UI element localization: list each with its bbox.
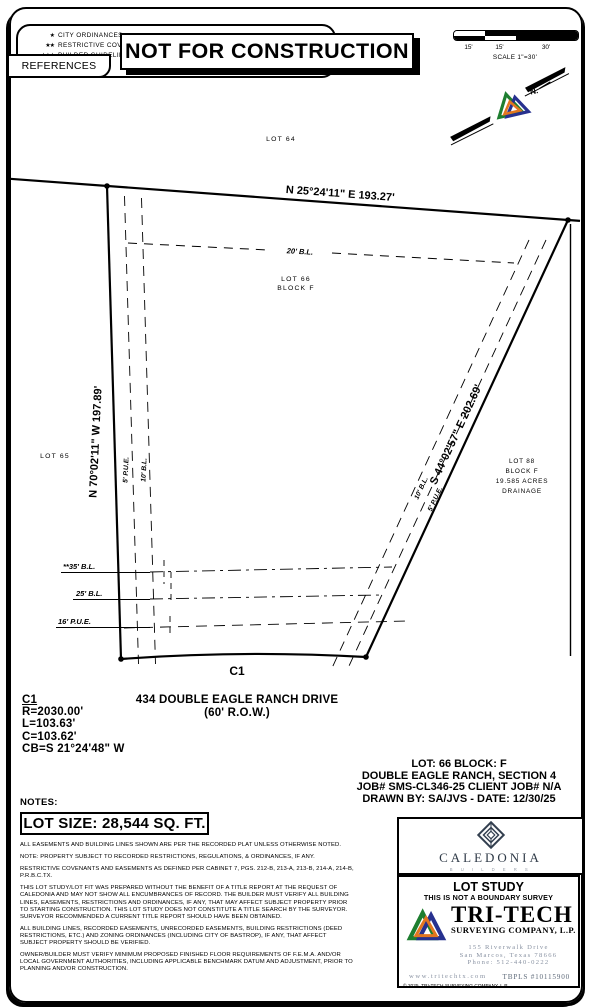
corner-point-se (363, 654, 369, 660)
scale-bar-bottom-row (454, 36, 578, 41)
scale-caption: SCALE 1"=30' (449, 54, 581, 61)
pue-5-left-line (125, 196, 139, 664)
address-line: 155 Riverwalk Drive (439, 944, 578, 952)
tritech-name-wrap: TRI-TECH SURVEYING COMPANY, L.P. (451, 904, 576, 935)
tritech-surveyor-box: LOT STUDY THIS IS NOT A BOUNDARY SURVEY … (397, 875, 580, 988)
legend-label: CITY ORDINANCES (58, 32, 123, 39)
building-line-20-right (332, 253, 514, 263)
building-line-20-left (128, 243, 268, 250)
tritech-footer-row: www.tritechtx.com TBPLS #10115900 (399, 973, 578, 981)
lot-study-document: 20' B.L. 5' P.U.E. 10' B.L. 10' B.L. 5' … (0, 0, 612, 1008)
caledonia-builders-box: CALEDONIA B U I L D E R S (397, 817, 584, 875)
one-star-icon: ★ (28, 32, 54, 39)
curve-radius: R=2030.00' (22, 706, 125, 718)
note-paragraph: THIS LOT STUDY/LOT FIT WAS PREPARED WITH… (20, 885, 354, 920)
lot-66-label-line1: LOT 66 (281, 276, 311, 283)
bearing-west-line: N 70°02'11" W 197.89' (87, 385, 104, 498)
not-for-construction-banner: NOT FOR CONSTRUCTION (120, 33, 414, 70)
caledonia-knot-icon (476, 821, 506, 849)
tritech-license: TBPLS #10115900 (503, 973, 570, 981)
lot-88-label-line4: DRAINAGE (502, 488, 542, 495)
building-line-10-right-label: 10' B.L. (413, 476, 429, 501)
note-paragraph: NOTE: PROPERTY SUBJECT TO RECORDED RESTR… (20, 854, 354, 861)
street-name-label: 434 DOUBLE EAGLE RANCH DRIVE (136, 694, 339, 706)
two-star-icon: ★★ (28, 42, 54, 49)
tritech-name: TRI-TECH (451, 904, 576, 925)
job-drawn-by: DRAWN BY: SA/JVS - DATE: 12/30/25 (336, 794, 582, 806)
pue-5-left-label: 5' P.U.E. (122, 457, 130, 483)
street-row-label: (60' R.O.W.) (204, 707, 270, 719)
lot-65-label: LOT 65 (40, 453, 70, 460)
curve-chord-bearing: CB=S 21°24'48" W (22, 743, 125, 755)
tritech-company: SURVEYING COMPANY, L.P. (451, 925, 576, 935)
scale-bar: 15' 15' 30' SCALE 1"=30' (449, 30, 581, 61)
tritech-logo-row: TRI-TECH SURVEYING COMPANY, L.P. (399, 904, 578, 942)
scale-bar-graphic (453, 30, 579, 41)
curve-data-table: C1 R=2030.00' L=103.63' C=103.62' CB=S 2… (22, 694, 125, 755)
curve-name: C1 (22, 694, 125, 706)
building-line-35-line (150, 567, 392, 572)
building-line-10-left-line (142, 198, 156, 664)
notes-header: NOTES: (20, 797, 354, 808)
curve-chord: C=103.62' (22, 731, 125, 743)
tritech-website: www.tritechtx.com (409, 973, 487, 981)
note-paragraph: RESTRICTIVE COVENANTS AND EASEMENTS AS D… (20, 866, 354, 880)
caledonia-subtitle: B U I L D E R S (450, 867, 531, 872)
references-tab: REFERENCES (7, 54, 111, 78)
building-line-10-right-line (332, 240, 529, 668)
note-paragraph: ALL BUILDING LINES, RECORDED EASEMENTS, … (20, 926, 354, 947)
corner-point-sw (118, 656, 124, 662)
tritech-address: 155 Riverwalk Drive San Marcos, Texas 78… (439, 944, 578, 967)
scale-bar-labels: 15' 15' 30' (453, 44, 577, 51)
tritech-triangle-logo (405, 904, 447, 942)
west-boundary-line (107, 186, 121, 659)
note-paragraph: ALL EASEMENTS AND BUILDING LINES SHOWN A… (20, 842, 354, 849)
address-line: Phone: 512-440-0222 (439, 959, 578, 967)
north-arrow: N. (440, 67, 579, 145)
note-paragraph: OWNER/BUILDER MUST VERIFY MINIMUM PROPOS… (20, 952, 354, 973)
caledonia-name: CALEDONIA (439, 850, 542, 866)
south-boundary-curve (121, 654, 366, 659)
building-line-10-left-label: 10' B.L. (140, 458, 148, 482)
lot-study-title: LOT STUDY (399, 881, 578, 893)
lot-size-box: LOT SIZE: 28,544 SQ. FT. (20, 812, 209, 835)
building-line-20-label: 20' B.L. (286, 246, 314, 256)
curve-c1-label: C1 (229, 664, 245, 678)
curve-length: L=103.63' (22, 718, 125, 730)
lot-88-label-line3: 19.585 ACRES (496, 478, 549, 485)
not-boundary-survey-subtitle: THIS IS NOT A BOUNDARY SURVEY (399, 893, 578, 902)
address-line: San Marcos, Texas 78666 (439, 952, 578, 960)
building-line-25-line (150, 595, 380, 599)
job-info-block: LOT: 66 BLOCK: F DOUBLE EAGLE RANCH, SEC… (336, 759, 582, 805)
corner-point-nw (104, 183, 110, 189)
notes-section: NOTES: LOT SIZE: 28,544 SQ. FT. ALL EASE… (20, 797, 354, 978)
building-line-25-label: 25' B.L. (75, 589, 102, 598)
notes-paragraphs: ALL EASEMENTS AND BUILDING LINES SHOWN A… (20, 842, 354, 973)
lot-88-label-line1: LOT 88 (509, 458, 535, 465)
pue-16-label: 16' P.U.E. (58, 617, 91, 626)
building-line-35-label: **35' B.L. (63, 562, 95, 571)
east-boundary-line (366, 220, 568, 657)
lot-64-label: LOT 64 (266, 136, 296, 143)
corner-point-ne (565, 217, 571, 223)
pue-16-line (124, 621, 408, 628)
north-arrow-n-label: N. (529, 86, 539, 97)
lot-66-label-line2: BLOCK F (277, 285, 314, 292)
lot-88-label-line2: BLOCK F (506, 468, 539, 475)
tritech-copyright: © 2025, TRI-TECH SURVEYING COMPANY, L.P. (399, 984, 578, 989)
north-arrow-left-wing (448, 116, 494, 141)
job-lot-block: LOT: 66 BLOCK: F (336, 759, 582, 771)
